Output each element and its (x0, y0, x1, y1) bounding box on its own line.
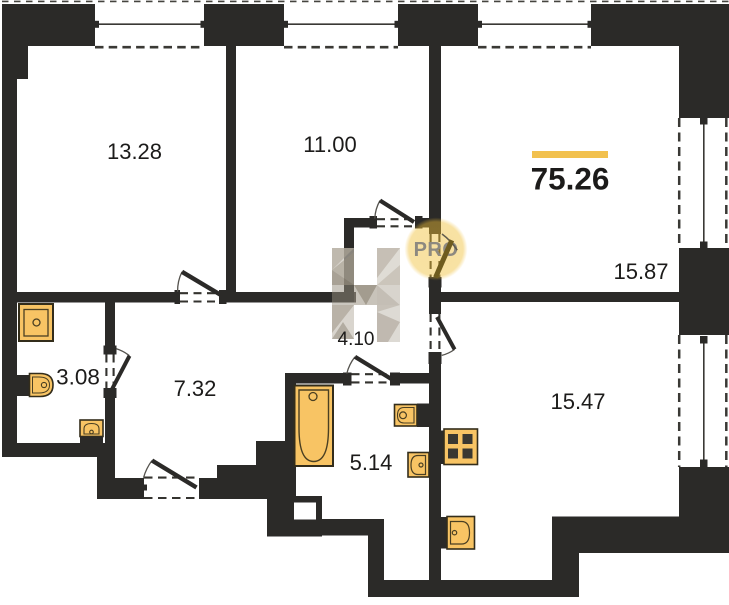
svg-text:4.10: 4.10 (338, 329, 375, 350)
svg-text:75.26: 75.26 (531, 161, 610, 197)
svg-text:15.87: 15.87 (613, 259, 668, 284)
svg-text:13.28: 13.28 (107, 139, 162, 164)
svg-text:7.32: 7.32 (174, 376, 217, 401)
svg-text:11.00: 11.00 (303, 132, 356, 157)
svg-text:5.14: 5.14 (350, 450, 393, 475)
svg-text:3.08: 3.08 (56, 365, 100, 390)
svg-text:15.47: 15.47 (550, 389, 605, 414)
